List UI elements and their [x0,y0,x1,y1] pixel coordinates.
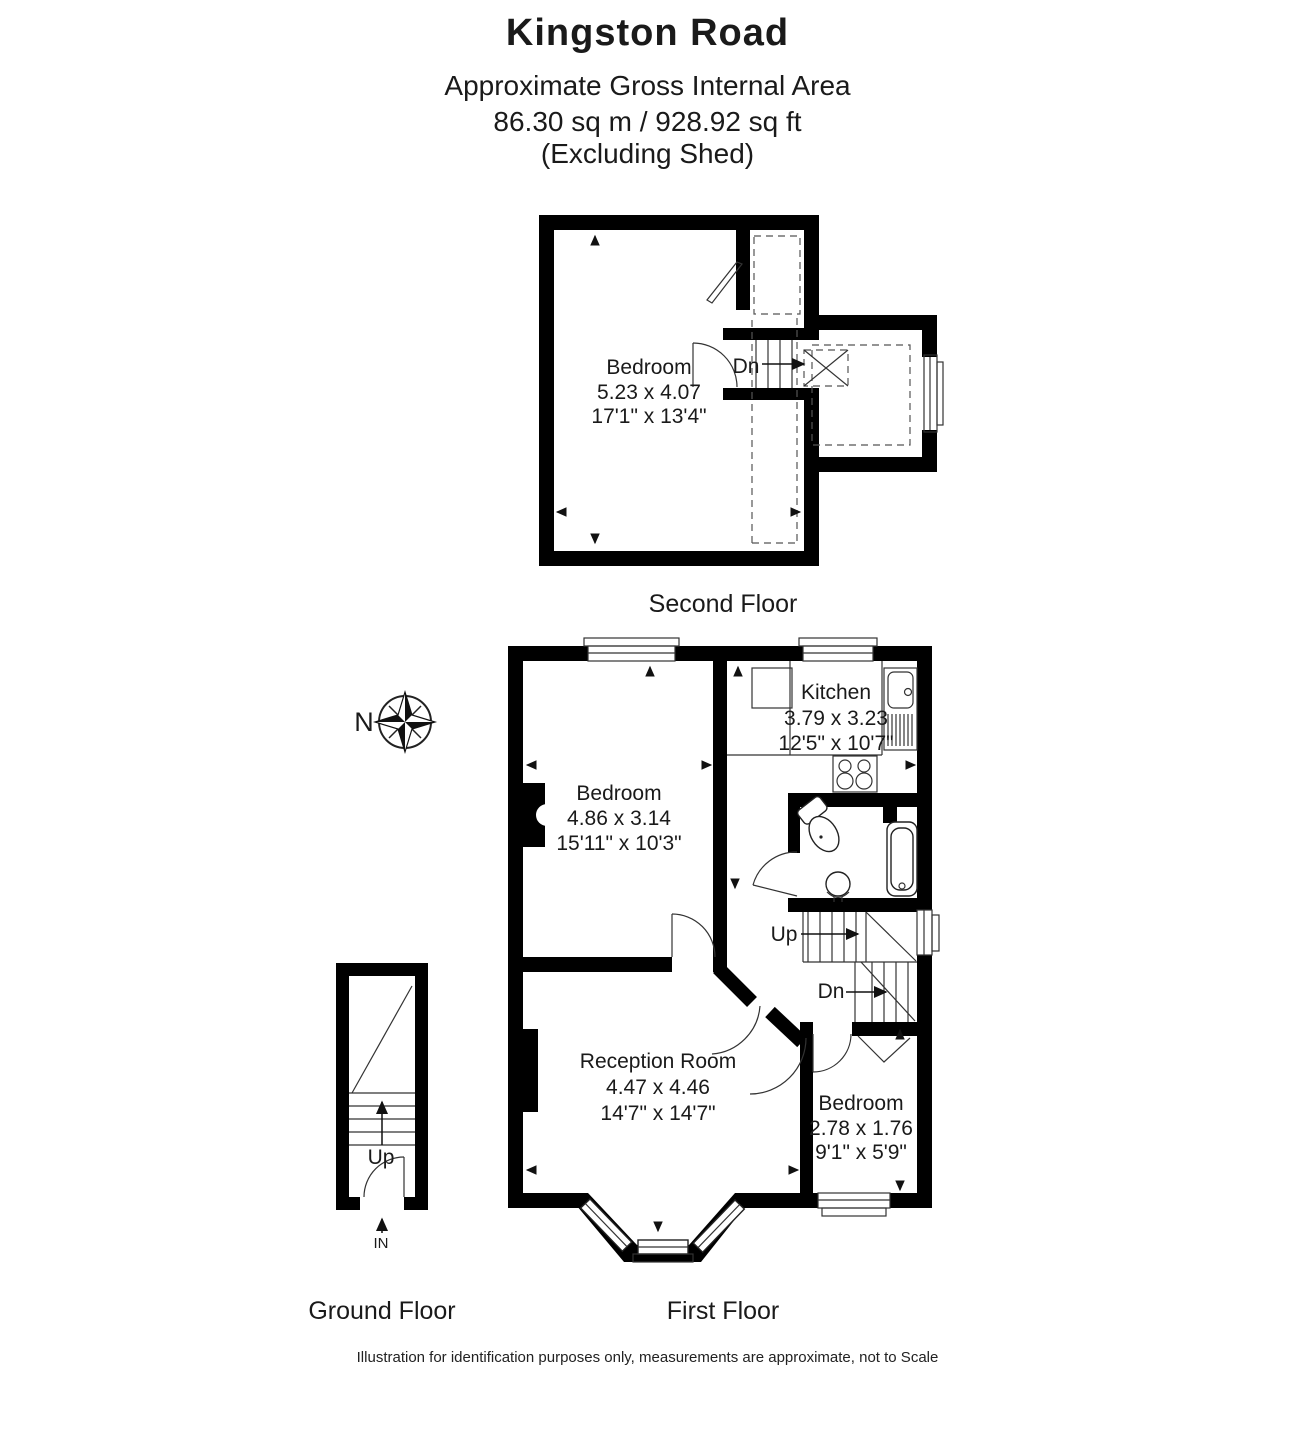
bedroom-reception-wall [508,957,672,972]
stair-down-label: Dn [818,980,845,1003]
compass-rose: N [340,670,470,780]
room-label-kitchen: Kitchen [801,681,871,704]
bathroom-bottom-wall [788,898,917,912]
bedroom2-top-wall [852,1022,932,1036]
bedroom1-dim-metric: 4.86 x 3.14 [567,807,671,830]
room-label-reception: Reception Room [580,1050,736,1073]
bedroom2-left-wall [800,1022,813,1193]
bedroom-kitchen-divider [713,646,727,962]
room-label-bedroom: Bedroom [606,356,691,379]
reception-dim-metric: 4.47 x 4.46 [606,1076,710,1099]
room-dim-imperial: 17'1" x 13'4" [591,405,706,428]
bathtub [887,822,917,896]
entrance-label: IN [374,1235,389,1252]
room-label-bedroom2: Bedroom [818,1092,903,1115]
ground-floor-plan: Up IN [320,950,440,1270]
compass-north-label: N [354,707,374,737]
reception-dim-imperial: 14'7" x 14'7" [600,1102,715,1125]
page-title: Kingston Road [0,12,1295,55]
stair-down-label: Dn [733,355,760,378]
stair-wall-top [723,328,804,340]
area-value: 86.30 sq m / 928.92 sq ft [0,106,1295,138]
room-label-bedroom1: Bedroom [576,782,661,805]
stair-wall-bottom [723,388,804,400]
stair-up-label: Up [368,1146,395,1169]
second-floor-label: Second Floor [573,590,873,619]
disclaimer-text: Illustration for identification purposes… [0,1349,1295,1366]
extension-window [922,355,943,432]
bathroom-stub-wall [883,807,897,823]
stair-up-label: Up [771,923,798,946]
first-floor-label: First Floor [573,1297,873,1326]
area-note: (Excluding Shed) [0,138,1295,170]
subtitle-gross-internal-area: Approximate Gross Internal Area [0,70,1295,102]
bathroom-left-wall [788,793,800,853]
second-floor-plan: Bedroom 5.23 x 4.07 17'1" x 13'4" Dn [500,190,960,610]
first-floor-plan: Kitchen 3.79 x 3.23 12'5" x 10'7" Bedroo… [490,630,960,1280]
chimney-breast-reception [523,1029,538,1112]
ground-floor-walls [336,963,428,1210]
bedroom2-dim-metric: 2.78 x 1.76 [809,1117,913,1140]
ground-floor-label: Ground Floor [232,1297,532,1326]
bedroom1-dim-imperial: 15'11" x 10'3" [556,832,681,855]
compass-star [375,692,435,752]
bedroom2-dim-imperial: 9'1" x 5'9" [815,1141,907,1164]
kitchen-dim-metric: 3.79 x 3.23 [784,707,888,730]
room-dim-metric: 5.23 x 4.07 [597,381,701,404]
kitchen-dim-imperial: 12'5" x 10'7" [778,732,893,755]
entrance-opening [360,1197,404,1210]
